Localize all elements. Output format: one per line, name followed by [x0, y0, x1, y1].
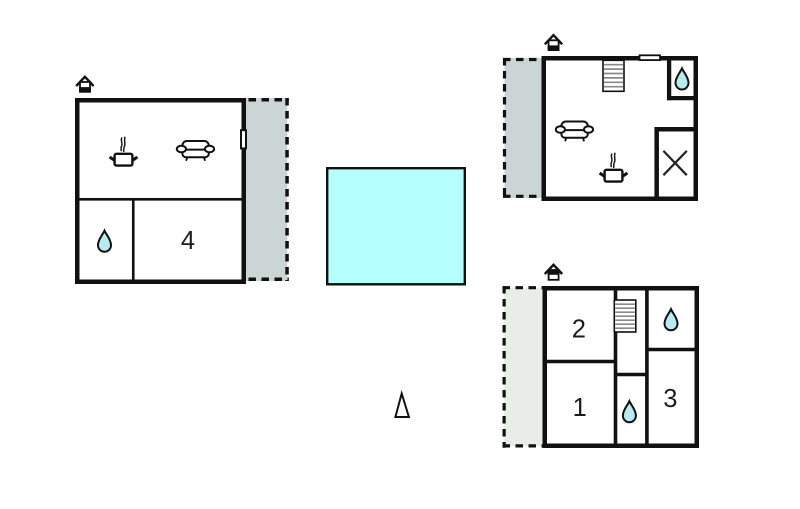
svg-text:2: 2 — [572, 316, 586, 344]
svg-text:3: 3 — [663, 385, 677, 413]
svg-text:1: 1 — [573, 394, 587, 422]
svg-text:4: 4 — [181, 227, 195, 255]
